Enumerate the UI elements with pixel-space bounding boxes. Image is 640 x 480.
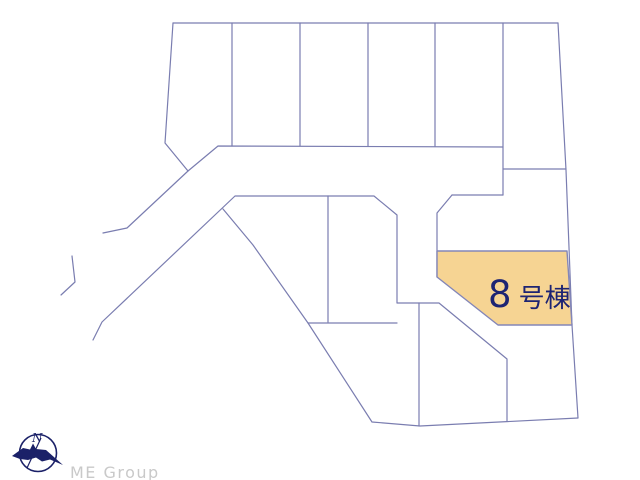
parcel-boundary-line [558,23,578,418]
compass-icon: N [12,431,63,472]
parcel-boundary-line [103,171,188,233]
parcel-boundary-line [61,256,75,295]
company-logo-text: ME Group [70,463,160,480]
site-plan-map: 8 号棟 N ME Group [0,0,640,480]
parcel-boundary-line [165,23,503,171]
parcel-lines [61,23,578,426]
lot-suffix: 号棟 [519,284,571,314]
compass-north-label: N [31,431,43,445]
site-plan-page: 8 号棟 N ME Group [0,0,640,480]
lot-number: 8 [488,273,512,316]
parcel-boundary-line [93,196,507,421]
